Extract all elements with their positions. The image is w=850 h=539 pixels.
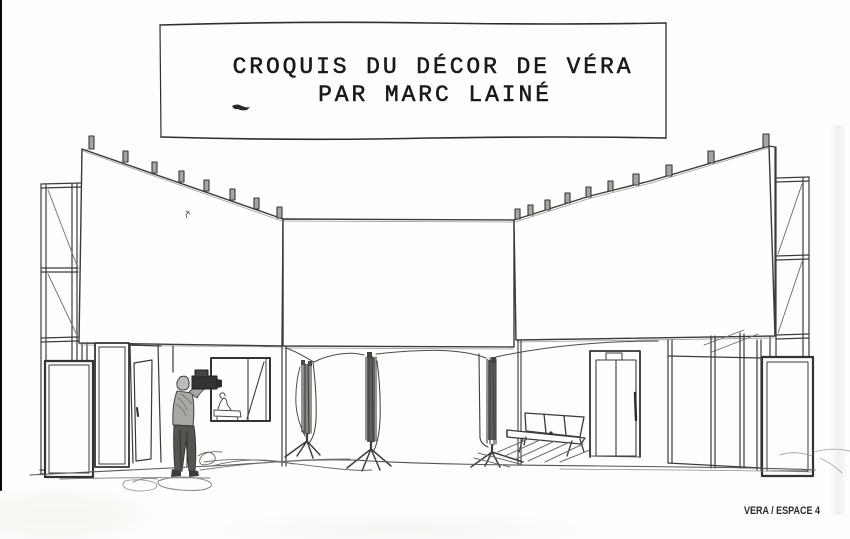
svg-text:PAR MARC LAINÉ: PAR MARC LAINÉ <box>318 81 552 108</box>
svg-text:VERA / ESPACE 4: VERA / ESPACE 4 <box>744 505 821 517</box>
svg-text:CROQUIS DU DÉCOR DE VÉRA: CROQUIS DU DÉCOR DE VÉRA <box>233 53 634 80</box>
